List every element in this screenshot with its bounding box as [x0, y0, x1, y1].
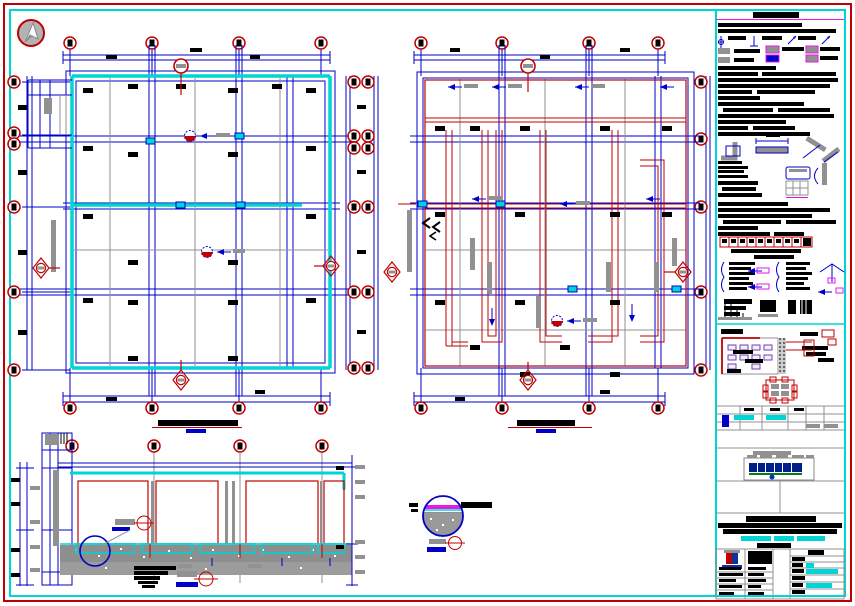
- stair-detail-row: [718, 299, 812, 320]
- notes-symbol-row: [718, 23, 836, 48]
- wall-hatch: [51, 220, 56, 272]
- notes-paragraphs-2: [718, 202, 836, 236]
- north-arrow-icon: [18, 20, 44, 46]
- floor-plan-right: [398, 0, 770, 433]
- website-text: [741, 536, 825, 541]
- title-block-table: [716, 549, 844, 599]
- level-marker: [185, 131, 231, 142]
- logo-block: [716, 448, 844, 513]
- project-title-block: [718, 516, 842, 548]
- detail-tag: [461, 502, 492, 508]
- beam-tags: [83, 84, 316, 361]
- legend-swatches: [718, 46, 840, 63]
- notes-header: [716, 12, 844, 20]
- dimension-lines-left: [18, 76, 70, 370]
- callout-label-1: [102, 516, 154, 545]
- beam-schedule-strip: [720, 237, 812, 259]
- left-dim-chain: [11, 462, 40, 586]
- rebar-symbol-row: [722, 262, 845, 295]
- plan-left-title: [152, 420, 242, 433]
- longitudinal-section: [11, 433, 365, 588]
- key-plan-block: [721, 329, 836, 374]
- side-panel: [716, 12, 844, 599]
- slab-detail-circle: [409, 496, 492, 552]
- dimension-lines-top: [63, 48, 330, 76]
- grid-beams: [410, 45, 700, 396]
- red-walls: [398, 80, 686, 366]
- dimension-lines-bottom: [63, 368, 330, 406]
- plan-right-title: [508, 420, 592, 433]
- column-hatch: [407, 210, 677, 328]
- level-marker: [202, 247, 246, 258]
- floor-slab: [60, 544, 352, 575]
- red-panels: [78, 481, 344, 544]
- cyan-columns: [418, 201, 681, 292]
- floor-plan-left: [8, 37, 355, 433]
- key-detail-shape: [763, 377, 797, 403]
- mid-dimension-strip: [346, 76, 378, 370]
- company-emblem: [722, 550, 742, 569]
- annex-stair: [28, 80, 72, 148]
- notes-paragraphs: [718, 66, 838, 136]
- cyan-walls: [72, 76, 330, 368]
- detail-title: [427, 537, 465, 553]
- drawing-sheet: [0, 0, 855, 606]
- level-marker: [552, 316, 598, 327]
- revision-table: [716, 406, 844, 430]
